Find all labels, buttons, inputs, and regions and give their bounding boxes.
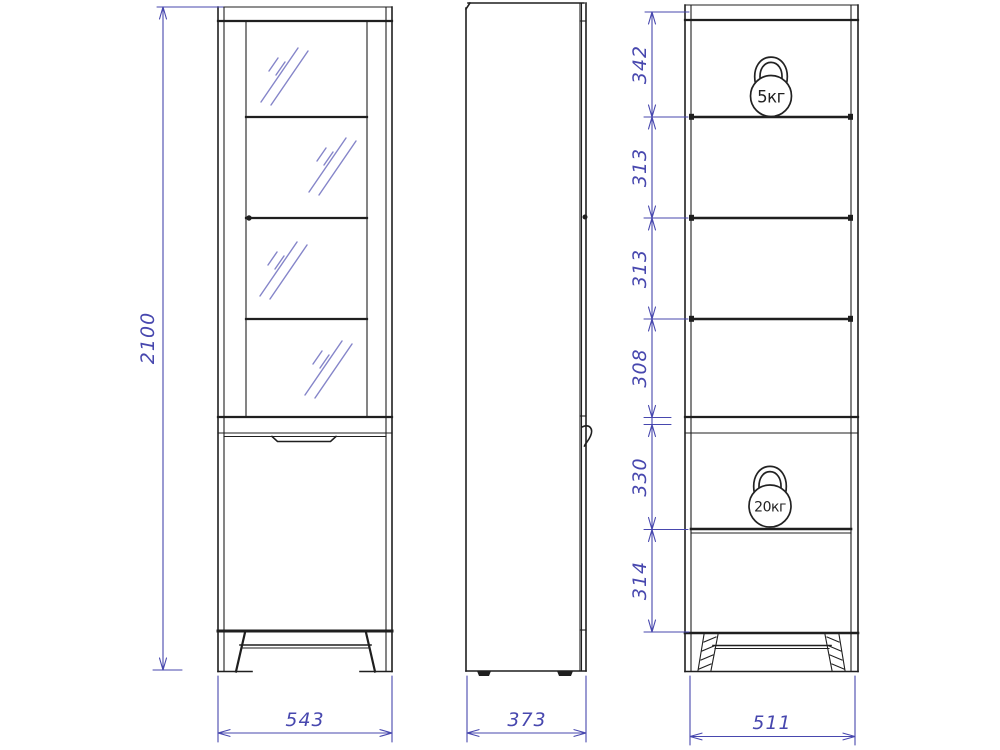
weight-label-5kg: 5кг [757,88,785,107]
glass-hatch-icon [305,341,352,398]
dim-label-front-width: 543 [285,709,324,731]
glass-hatch-icon [260,242,307,299]
dim-label-spacing-3: 308 [629,348,651,387]
kettlebell-5kg-icon: 5кг [751,60,792,117]
interior-view: 5кг 20кг [685,5,858,672]
dimension-interior-width: 511 [690,676,855,745]
dim-label-spacing-5: 314 [629,561,651,600]
dim-label-spacing-0: 342 [629,45,651,84]
drawer-handle-icon [272,437,336,442]
dimension-front-width: 543 [218,676,392,742]
glass-hatch-icon [309,138,356,195]
door-knob-icon [246,215,251,220]
dim-label-interior-width: 511 [752,712,791,734]
kettlebell-20kg-icon: 20кг [749,469,791,527]
dim-label-spacing-2: 313 [629,249,651,288]
furniture-technical-drawing: 5кг 20кг 2100 543 [0,0,1000,750]
side-view [466,3,592,676]
dim-label-height: 2100 [137,312,159,364]
glass-hatch-icon [261,48,308,105]
dimension-shelf-chain: 342 313 313 308 330 314 [629,12,689,632]
side-foot-icon [557,671,573,676]
dim-label-spacing-4: 330 [629,457,651,496]
dim-label-depth: 373 [507,709,546,731]
side-knob-icon [583,215,588,220]
side-foot-icon [477,671,491,676]
weight-label-20kg: 20кг [754,500,786,516]
dimension-depth: 373 [467,676,586,742]
dim-label-spacing-1: 313 [629,148,651,187]
leg-hatched-icon [825,635,845,671]
leg-hatched-icon [698,635,718,671]
dimension-overall-height: 2100 [137,7,223,670]
front-view [218,7,392,672]
